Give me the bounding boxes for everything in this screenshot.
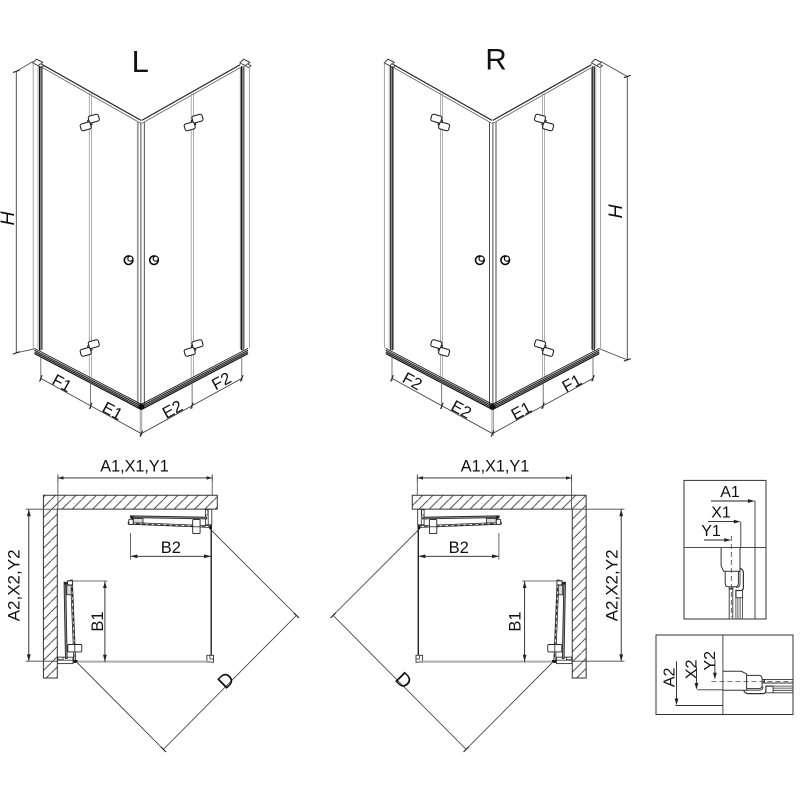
svg-text:B1: B1 <box>506 611 524 631</box>
svg-text:H: H <box>0 211 19 226</box>
svg-text:B2: B2 <box>449 539 469 557</box>
svg-text:H: H <box>605 204 627 219</box>
svg-text:A1,X1,Y1: A1,X1,Y1 <box>461 458 529 476</box>
svg-text:X2: X2 <box>683 659 700 679</box>
svg-text:A1: A1 <box>720 484 740 501</box>
svg-text:A2: A2 <box>661 668 678 688</box>
svg-text:B1: B1 <box>89 611 107 631</box>
svg-text:L: L <box>132 44 149 79</box>
svg-text:R: R <box>485 44 506 77</box>
svg-text:A2,X2,Y2: A2,X2,Y2 <box>603 549 622 621</box>
svg-text:Y1: Y1 <box>701 523 721 540</box>
svg-text:B2: B2 <box>161 539 181 557</box>
svg-text:Y2: Y2 <box>702 651 719 671</box>
svg-text:A2,X2,Y2: A2,X2,Y2 <box>4 549 23 621</box>
svg-text:X1: X1 <box>711 505 731 522</box>
svg-text:A1,X1,Y1: A1,X1,Y1 <box>100 458 168 476</box>
